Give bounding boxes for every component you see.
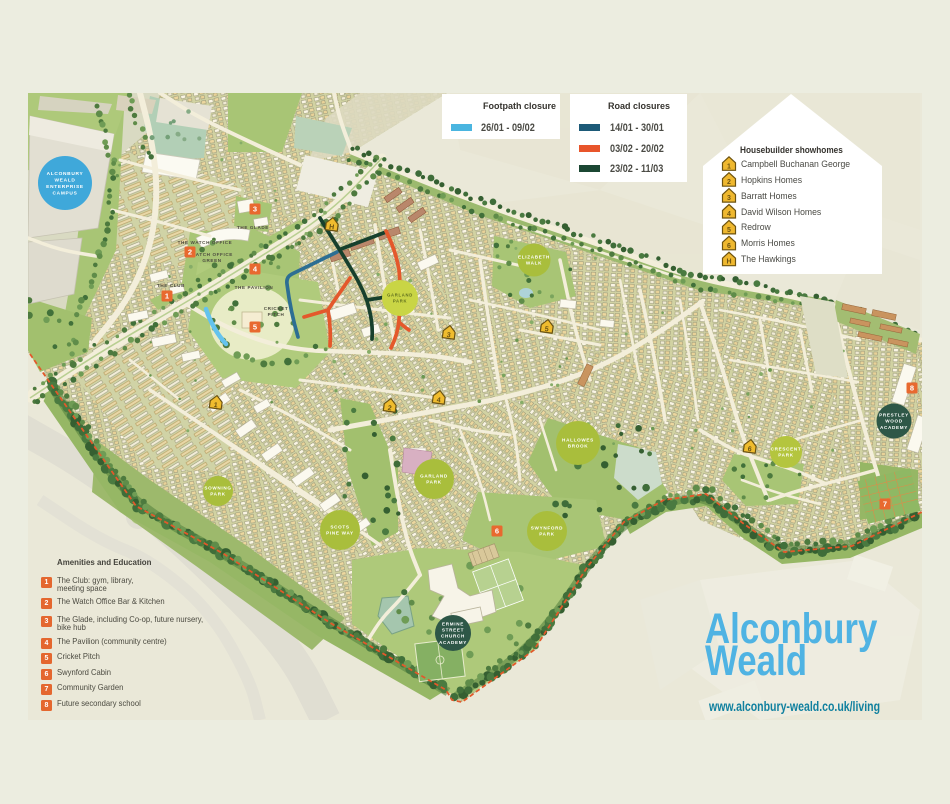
svg-text:H: H [329, 224, 335, 232]
svg-text:SWYNFORD: SWYNFORD [531, 526, 563, 531]
svg-text:ELIZABETH: ELIZABETH [518, 255, 550, 260]
svg-text:ENTERPRISE: ENTERPRISE [46, 184, 84, 190]
svg-text:PARK: PARK [539, 532, 554, 537]
svg-text:WOOD: WOOD [885, 419, 903, 424]
svg-text:ACADEMY: ACADEMY [880, 425, 908, 430]
svg-text:8: 8 [910, 384, 914, 393]
svg-text:7: 7 [883, 500, 887, 509]
svg-text:SOWNING: SOWNING [204, 486, 231, 491]
svg-text:GARLAND: GARLAND [387, 293, 413, 298]
svg-text:THE PAVILION: THE PAVILION [235, 285, 274, 290]
svg-text:CRICKET: CRICKET [264, 306, 289, 311]
svg-text:CHURCH: CHURCH [441, 634, 465, 639]
svg-text:SCOTS: SCOTS [330, 525, 349, 530]
svg-text:PARK: PARK [393, 298, 407, 303]
svg-text:STREET: STREET [442, 628, 464, 633]
svg-text:THE WATCH OFFICE: THE WATCH OFFICE [178, 240, 233, 245]
svg-text:HALLOWES: HALLOWES [562, 438, 594, 443]
svg-text:1: 1 [165, 292, 169, 301]
svg-text:ACADEMY: ACADEMY [439, 640, 467, 645]
svg-text:PARK: PARK [210, 492, 225, 497]
svg-text:ERMINE: ERMINE [442, 621, 464, 626]
svg-text:PINE WAY: PINE WAY [326, 531, 354, 536]
svg-text:BROOK: BROOK [568, 444, 589, 449]
svg-text:CRESCENT: CRESCENT [771, 447, 802, 452]
svg-text:GARLAND: GARLAND [420, 474, 448, 479]
svg-text:6: 6 [495, 527, 499, 536]
svg-text:WEALD: WEALD [54, 178, 75, 184]
svg-text:5: 5 [253, 323, 257, 332]
svg-text:CAMPUS: CAMPUS [53, 190, 78, 196]
svg-text:PRESTLEY: PRESTLEY [879, 412, 909, 417]
svg-text:H: H [726, 259, 731, 266]
svg-text:ALCONBURY: ALCONBURY [47, 171, 84, 177]
svg-text:PITCH: PITCH [268, 312, 285, 317]
svg-text:3: 3 [253, 205, 257, 214]
svg-text:2: 2 [188, 248, 192, 257]
svg-text:WALK: WALK [526, 261, 542, 266]
svg-text:4: 4 [727, 211, 731, 218]
svg-text:WATCH OFFICE: WATCH OFFICE [191, 252, 233, 257]
svg-text:1: 1 [727, 163, 731, 170]
svg-text:PARK: PARK [426, 480, 441, 485]
svg-text:3: 3 [727, 195, 731, 202]
svg-text:6: 6 [727, 243, 731, 250]
svg-text:GREEN: GREEN [202, 258, 221, 263]
svg-text:5: 5 [727, 227, 731, 234]
svg-text:PARK: PARK [778, 453, 793, 458]
svg-text:2: 2 [727, 179, 731, 186]
svg-text:THE GLADE: THE GLADE [237, 225, 269, 230]
svg-text:THE CLUB: THE CLUB [157, 283, 185, 288]
